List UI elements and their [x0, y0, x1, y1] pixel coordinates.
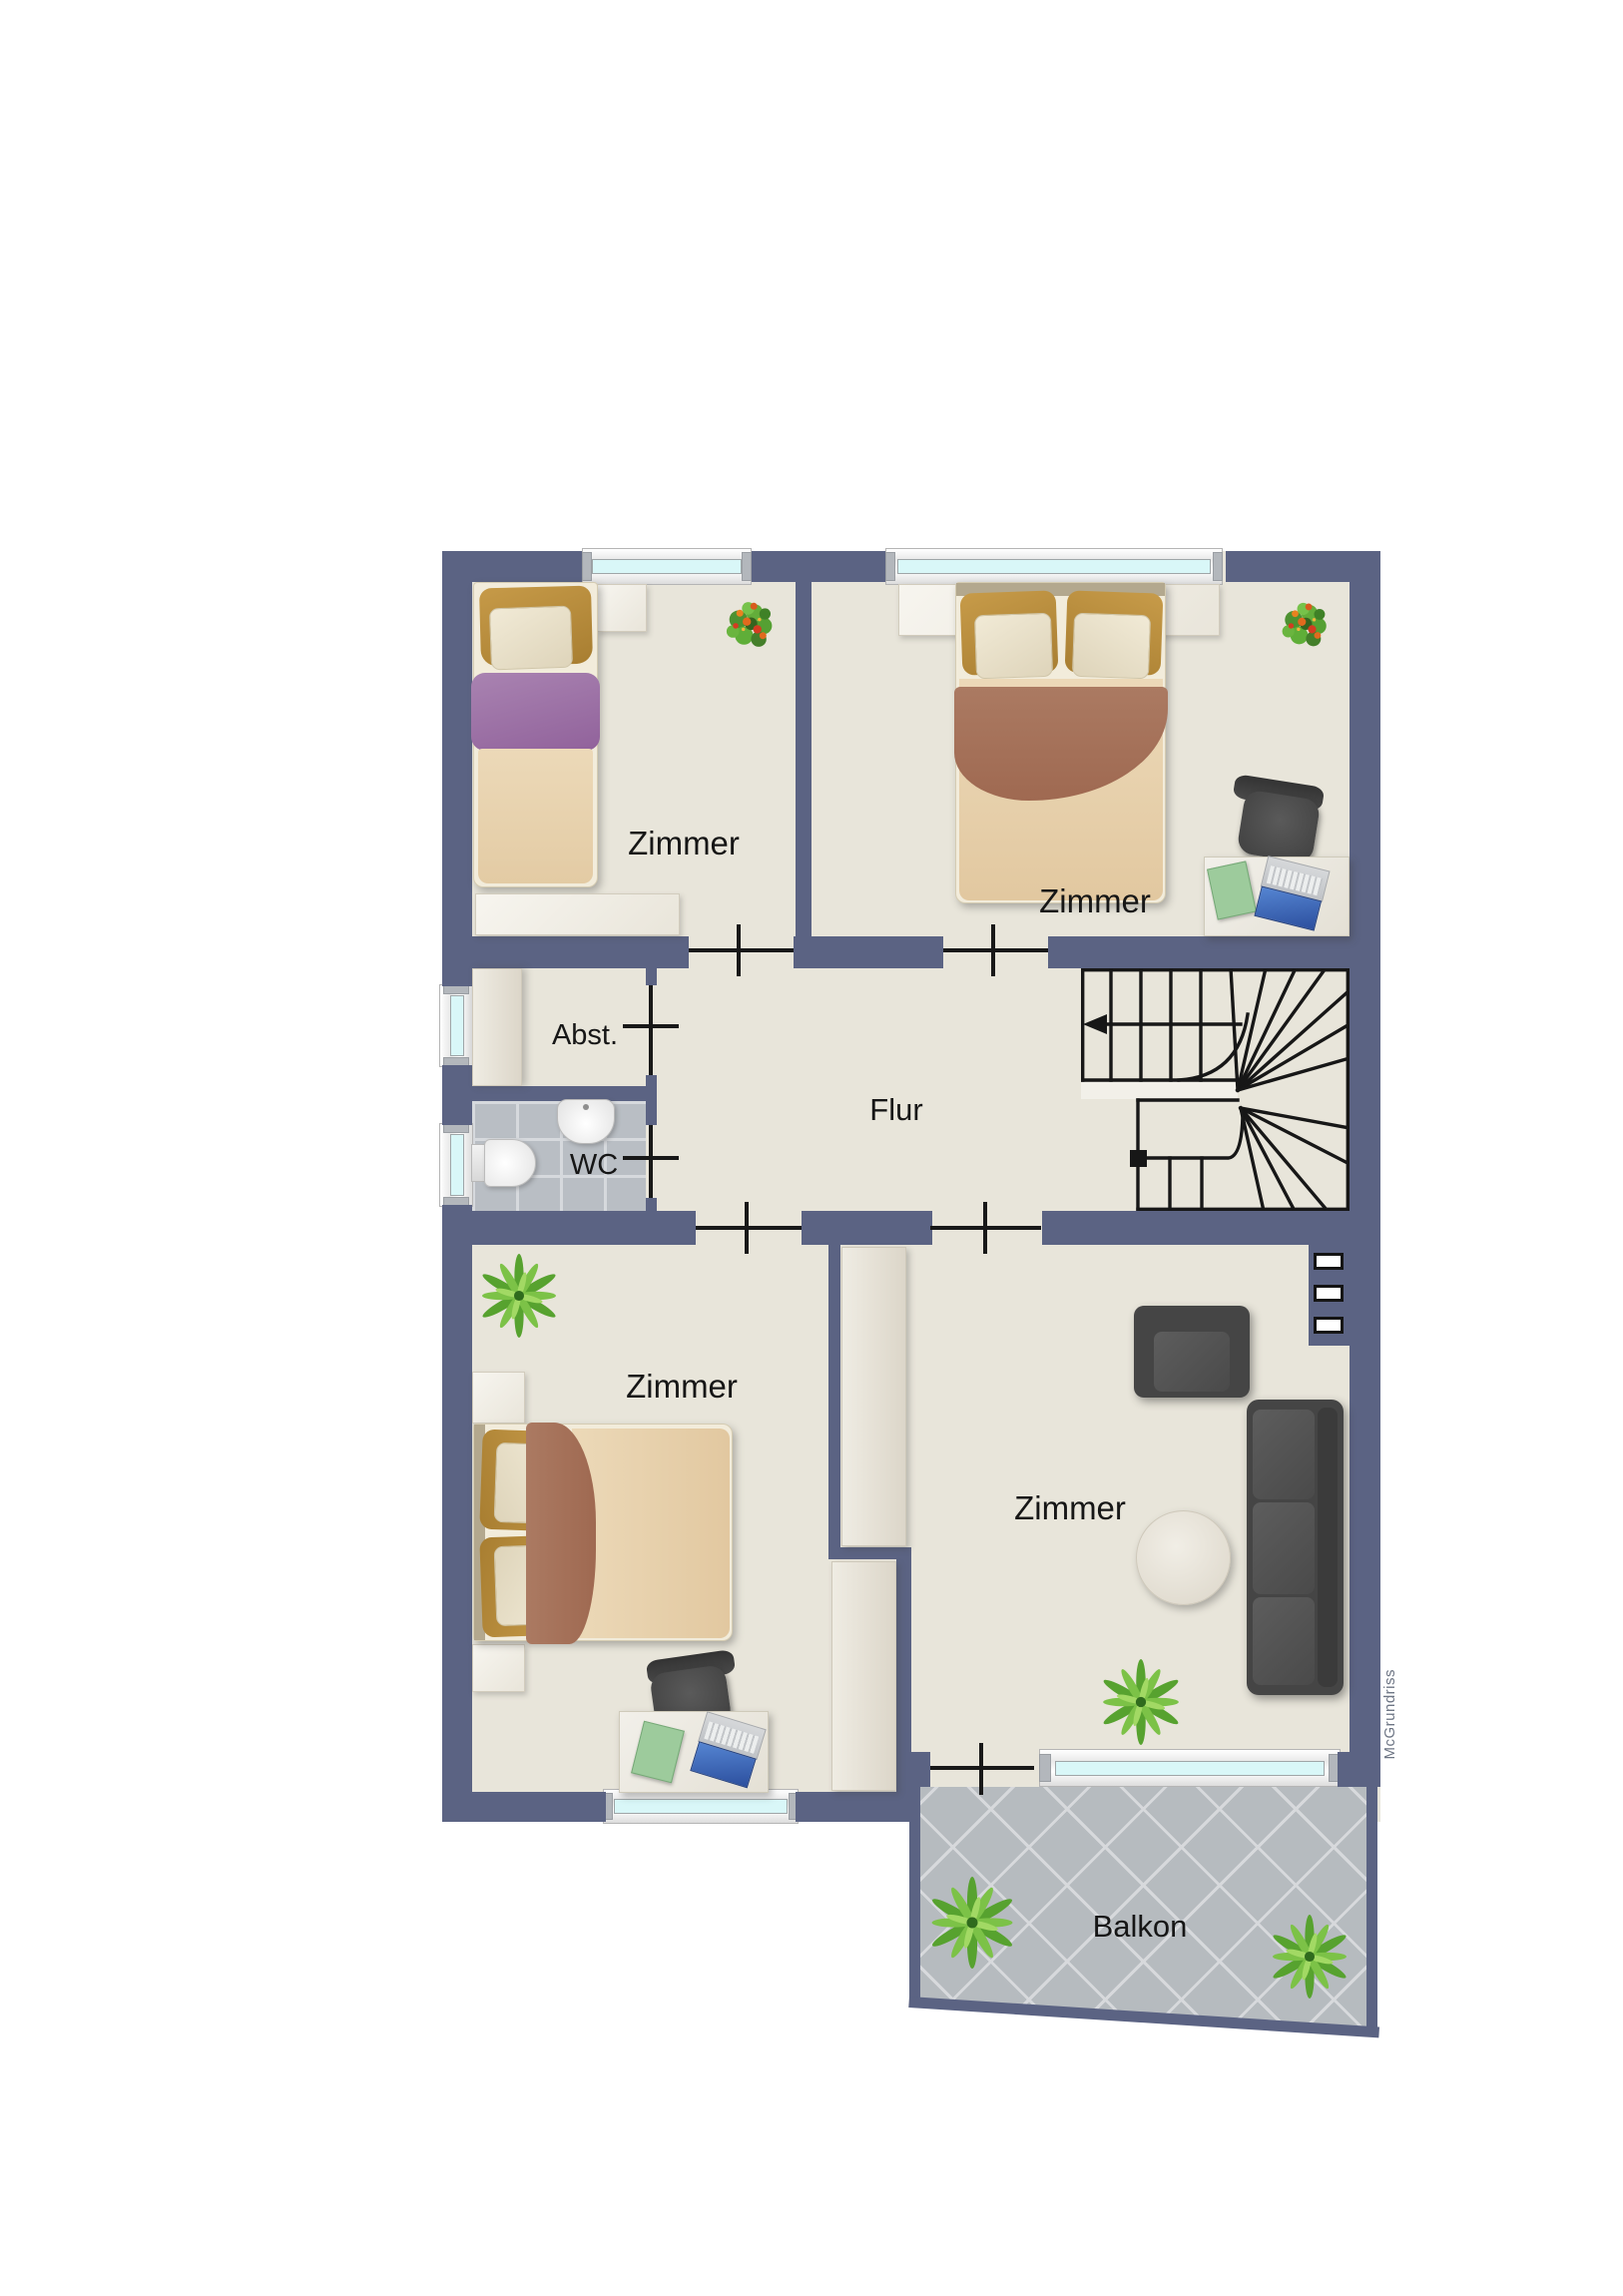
storage-closet — [472, 968, 522, 1086]
window-top-right-glass — [897, 559, 1211, 574]
chimney-flue — [1314, 1317, 1344, 1334]
staircase — [1081, 968, 1350, 1211]
door-living-room-tick — [983, 1202, 987, 1254]
bed-pillow — [974, 613, 1053, 680]
wall-top-bedrooms-partition — [796, 582, 811, 936]
room-label-top-right: Zimmer — [1005, 882, 1185, 920]
sofa — [1247, 1400, 1344, 1695]
toilet — [471, 1139, 537, 1187]
door-balcony-tick — [979, 1743, 983, 1795]
double-bed — [955, 582, 1166, 903]
door-top-left-bedroom — [689, 948, 794, 952]
armchair — [1134, 1306, 1250, 1398]
window-end-cap — [1039, 1754, 1051, 1782]
stair-landing — [1081, 1082, 1238, 1099]
room-label-balcony: Balkon — [1050, 1909, 1230, 1945]
wall-storage-east-b — [646, 1075, 657, 1125]
wall-left-c — [442, 1205, 472, 1822]
wall-top-b — [752, 551, 885, 582]
window-end-cap — [885, 552, 895, 581]
wall-storage-wc-divider — [443, 1086, 657, 1101]
double-bed-horizontal — [473, 1424, 733, 1641]
room-label-wc: WC — [544, 1149, 644, 1182]
bed-pillow — [489, 606, 573, 671]
bed-pillow — [1072, 613, 1151, 680]
room-label-top-left: Zimmer — [594, 825, 774, 862]
window-top-left-glass — [592, 559, 742, 574]
bed-blanket-brown — [526, 1423, 596, 1644]
flower-pot-plant — [715, 593, 785, 663]
nightstand — [597, 584, 647, 632]
door-bottom-left-bedroom — [696, 1226, 802, 1230]
window-end-cap — [742, 552, 752, 581]
faucet — [583, 1104, 589, 1110]
room-label-bottom-left: Zimmer — [592, 1368, 772, 1406]
stair-newel-post — [1130, 1150, 1147, 1167]
door-wc — [649, 1125, 653, 1198]
nightstand — [472, 1372, 525, 1424]
sink — [557, 1099, 615, 1144]
flower-pot-plant — [1271, 594, 1339, 662]
chimney-flue — [1314, 1285, 1344, 1302]
room-label-living: Zimmer — [980, 1489, 1160, 1527]
balcony-wall-right — [1366, 1787, 1377, 2034]
wall-right — [1350, 551, 1380, 1787]
room-label-hallway: Flur — [826, 1092, 966, 1128]
wall-hall-north-b — [794, 936, 943, 968]
window-wc-glass — [450, 1134, 464, 1196]
room-label-storage: Abst. — [535, 1019, 635, 1052]
window-storage-glass — [450, 995, 464, 1056]
wall-left-a — [442, 551, 472, 986]
wall-bottom-partition-lower — [896, 1547, 911, 1794]
wall-left-b — [442, 1065, 472, 1125]
window-end-cap — [1213, 552, 1223, 581]
door-top-right-bedroom — [943, 948, 1048, 952]
wall-bottom-partition-upper — [828, 1245, 840, 1547]
bed-blanket-purple — [471, 673, 600, 751]
wall-wc-east — [646, 1198, 657, 1211]
wall-storage-east-a — [646, 968, 657, 985]
living-room-closet — [841, 1247, 906, 1546]
floor-plan: Zimmer Zimmer Abst. WC Flur — [0, 0, 1623, 2296]
balcony-wall-left — [909, 1787, 920, 2003]
wall-living-south-a — [911, 1752, 930, 1787]
door-bottom-left-bedroom-tick — [745, 1202, 749, 1254]
door-storage — [649, 985, 653, 1075]
wall-hall-south-b — [802, 1211, 932, 1245]
stair-direction-arrow — [1083, 1014, 1107, 1034]
wall-hall-north-a — [442, 936, 689, 968]
window-bottom-bedroom-glass — [614, 1799, 788, 1814]
palm-plant — [1098, 1659, 1184, 1745]
bed-mattress — [478, 749, 593, 883]
watermark-text: McGrundriss — [1381, 1669, 1398, 1760]
door-top-left-bedroom-tick — [737, 924, 741, 976]
wall-hall-north-c — [1048, 936, 1351, 968]
desk-chair — [1236, 789, 1321, 863]
palm-plant — [477, 1254, 561, 1338]
window-balcony-glass — [1055, 1761, 1325, 1776]
palm-plant — [926, 1877, 1018, 1969]
wall-hall-south-c — [1042, 1211, 1380, 1245]
bedroom-closet — [831, 1561, 896, 1791]
door-top-right-bedroom-tick — [991, 924, 995, 976]
palm-plant — [1268, 1915, 1352, 1999]
single-bed — [473, 582, 598, 887]
sideboard — [475, 893, 680, 935]
wall-hall-south-a — [442, 1211, 696, 1245]
nightstand — [472, 1644, 525, 1692]
wall-bottom-b — [796, 1792, 911, 1822]
window-end-cap — [582, 552, 592, 581]
chimney-flue — [1314, 1253, 1344, 1270]
